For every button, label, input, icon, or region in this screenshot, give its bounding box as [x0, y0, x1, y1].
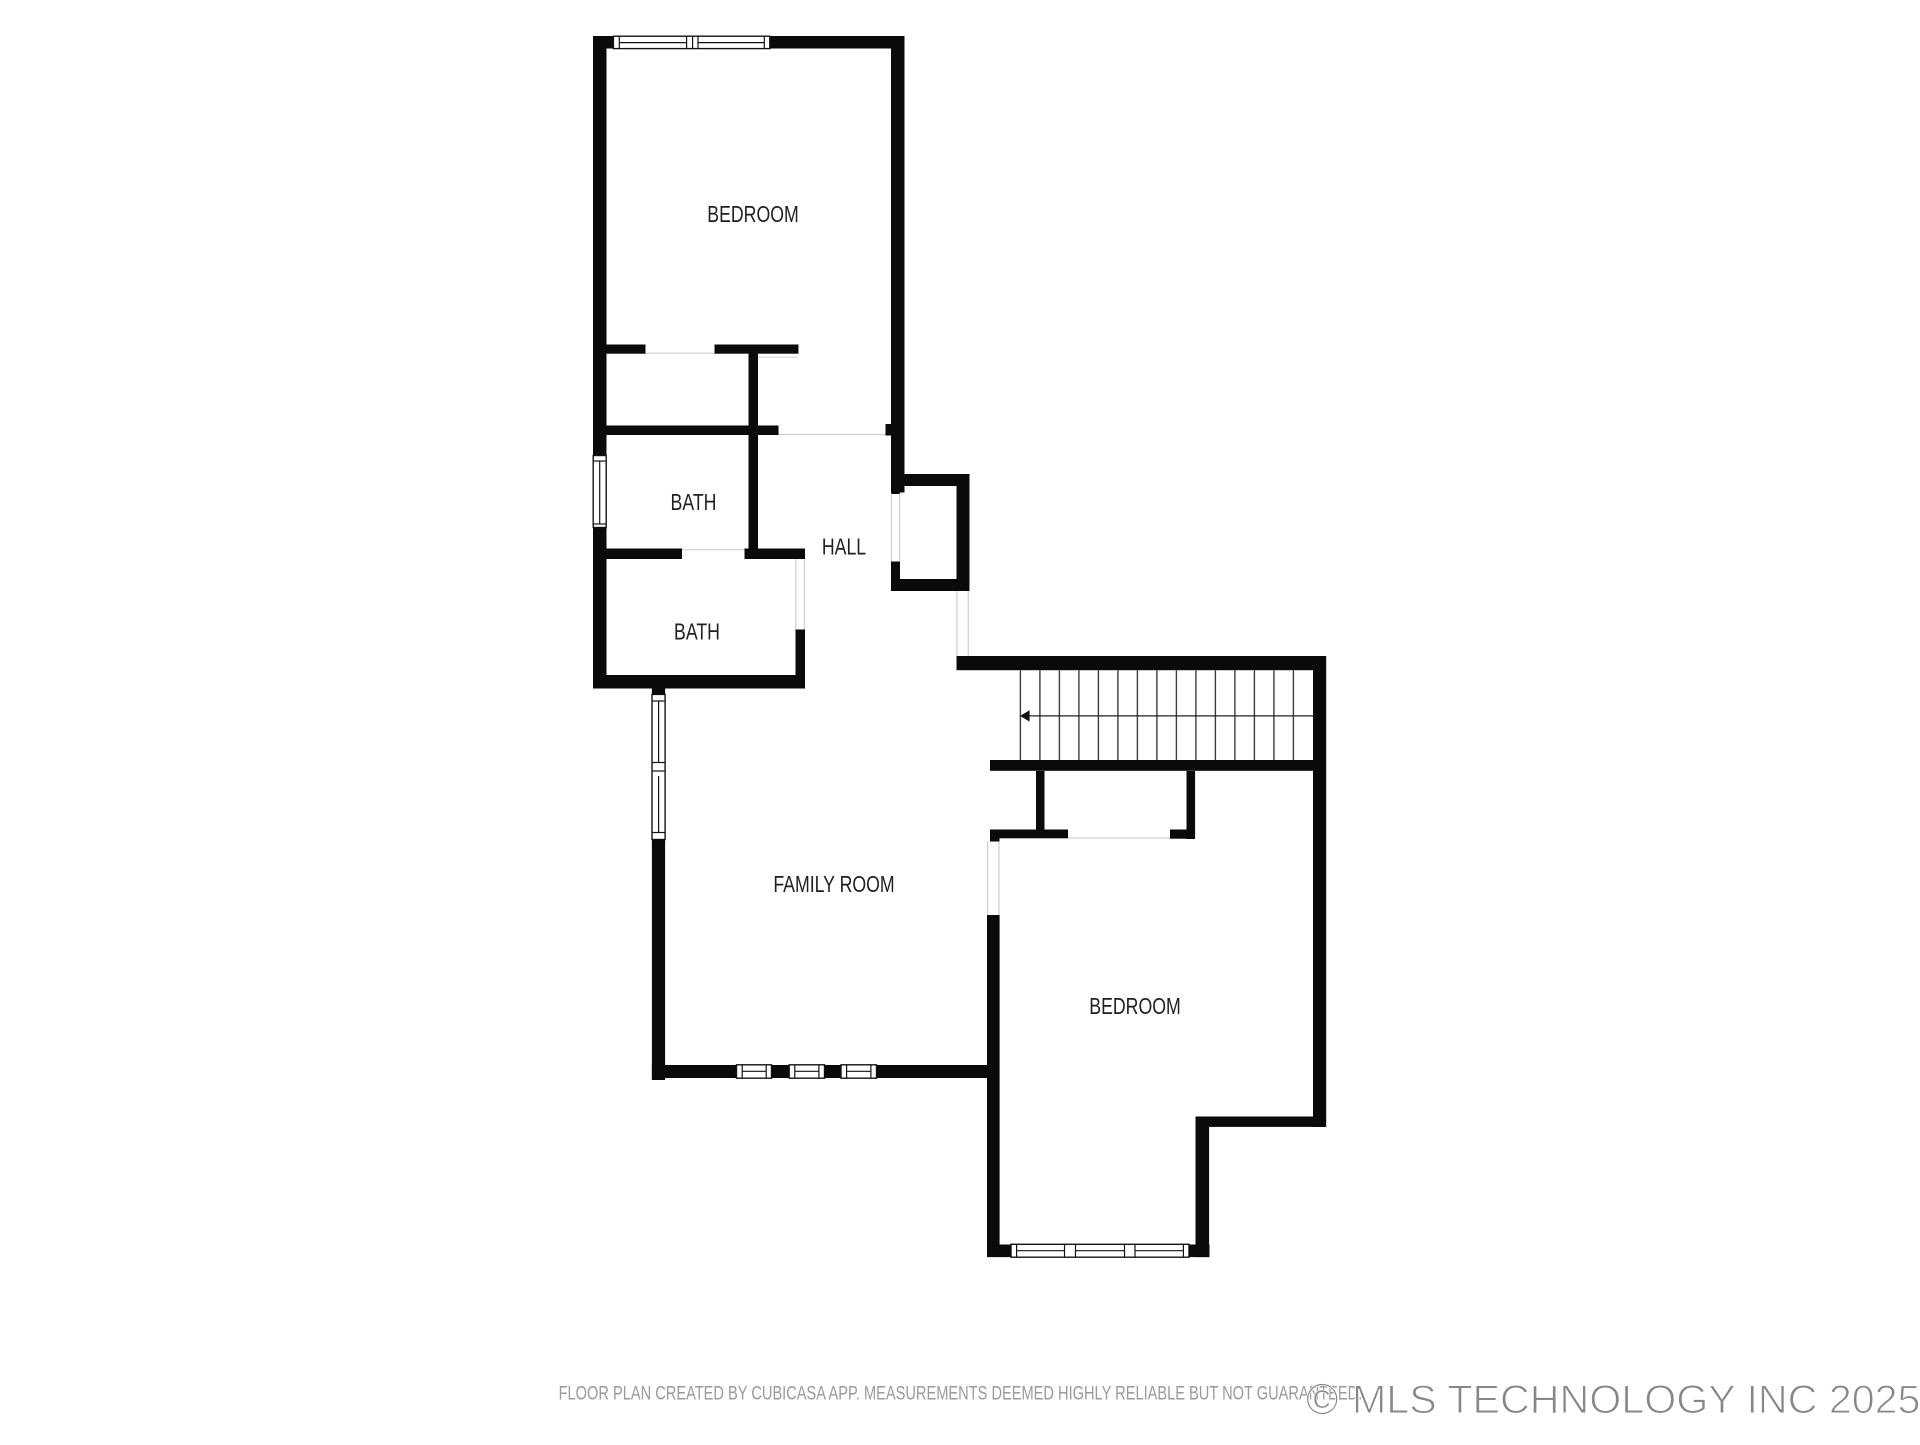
svg-text:©: © — [1306, 1375, 1338, 1424]
svg-text:MLS TECHNOLOGY INC 2025: MLS TECHNOLOGY INC 2025 — [1352, 1377, 1920, 1422]
svg-text:FAMILY ROOM: FAMILY ROOM — [773, 872, 894, 898]
svg-text:HALL: HALL — [822, 534, 866, 560]
svg-text:FLOOR PLAN CREATED BY CUBICASA: FLOOR PLAN CREATED BY CUBICASA APP. MEAS… — [559, 1383, 1363, 1404]
svg-text:BEDROOM: BEDROOM — [1089, 994, 1180, 1020]
svg-text:BATH: BATH — [671, 490, 717, 516]
svg-text:BEDROOM: BEDROOM — [707, 202, 798, 228]
svg-text:BATH: BATH — [674, 619, 720, 645]
